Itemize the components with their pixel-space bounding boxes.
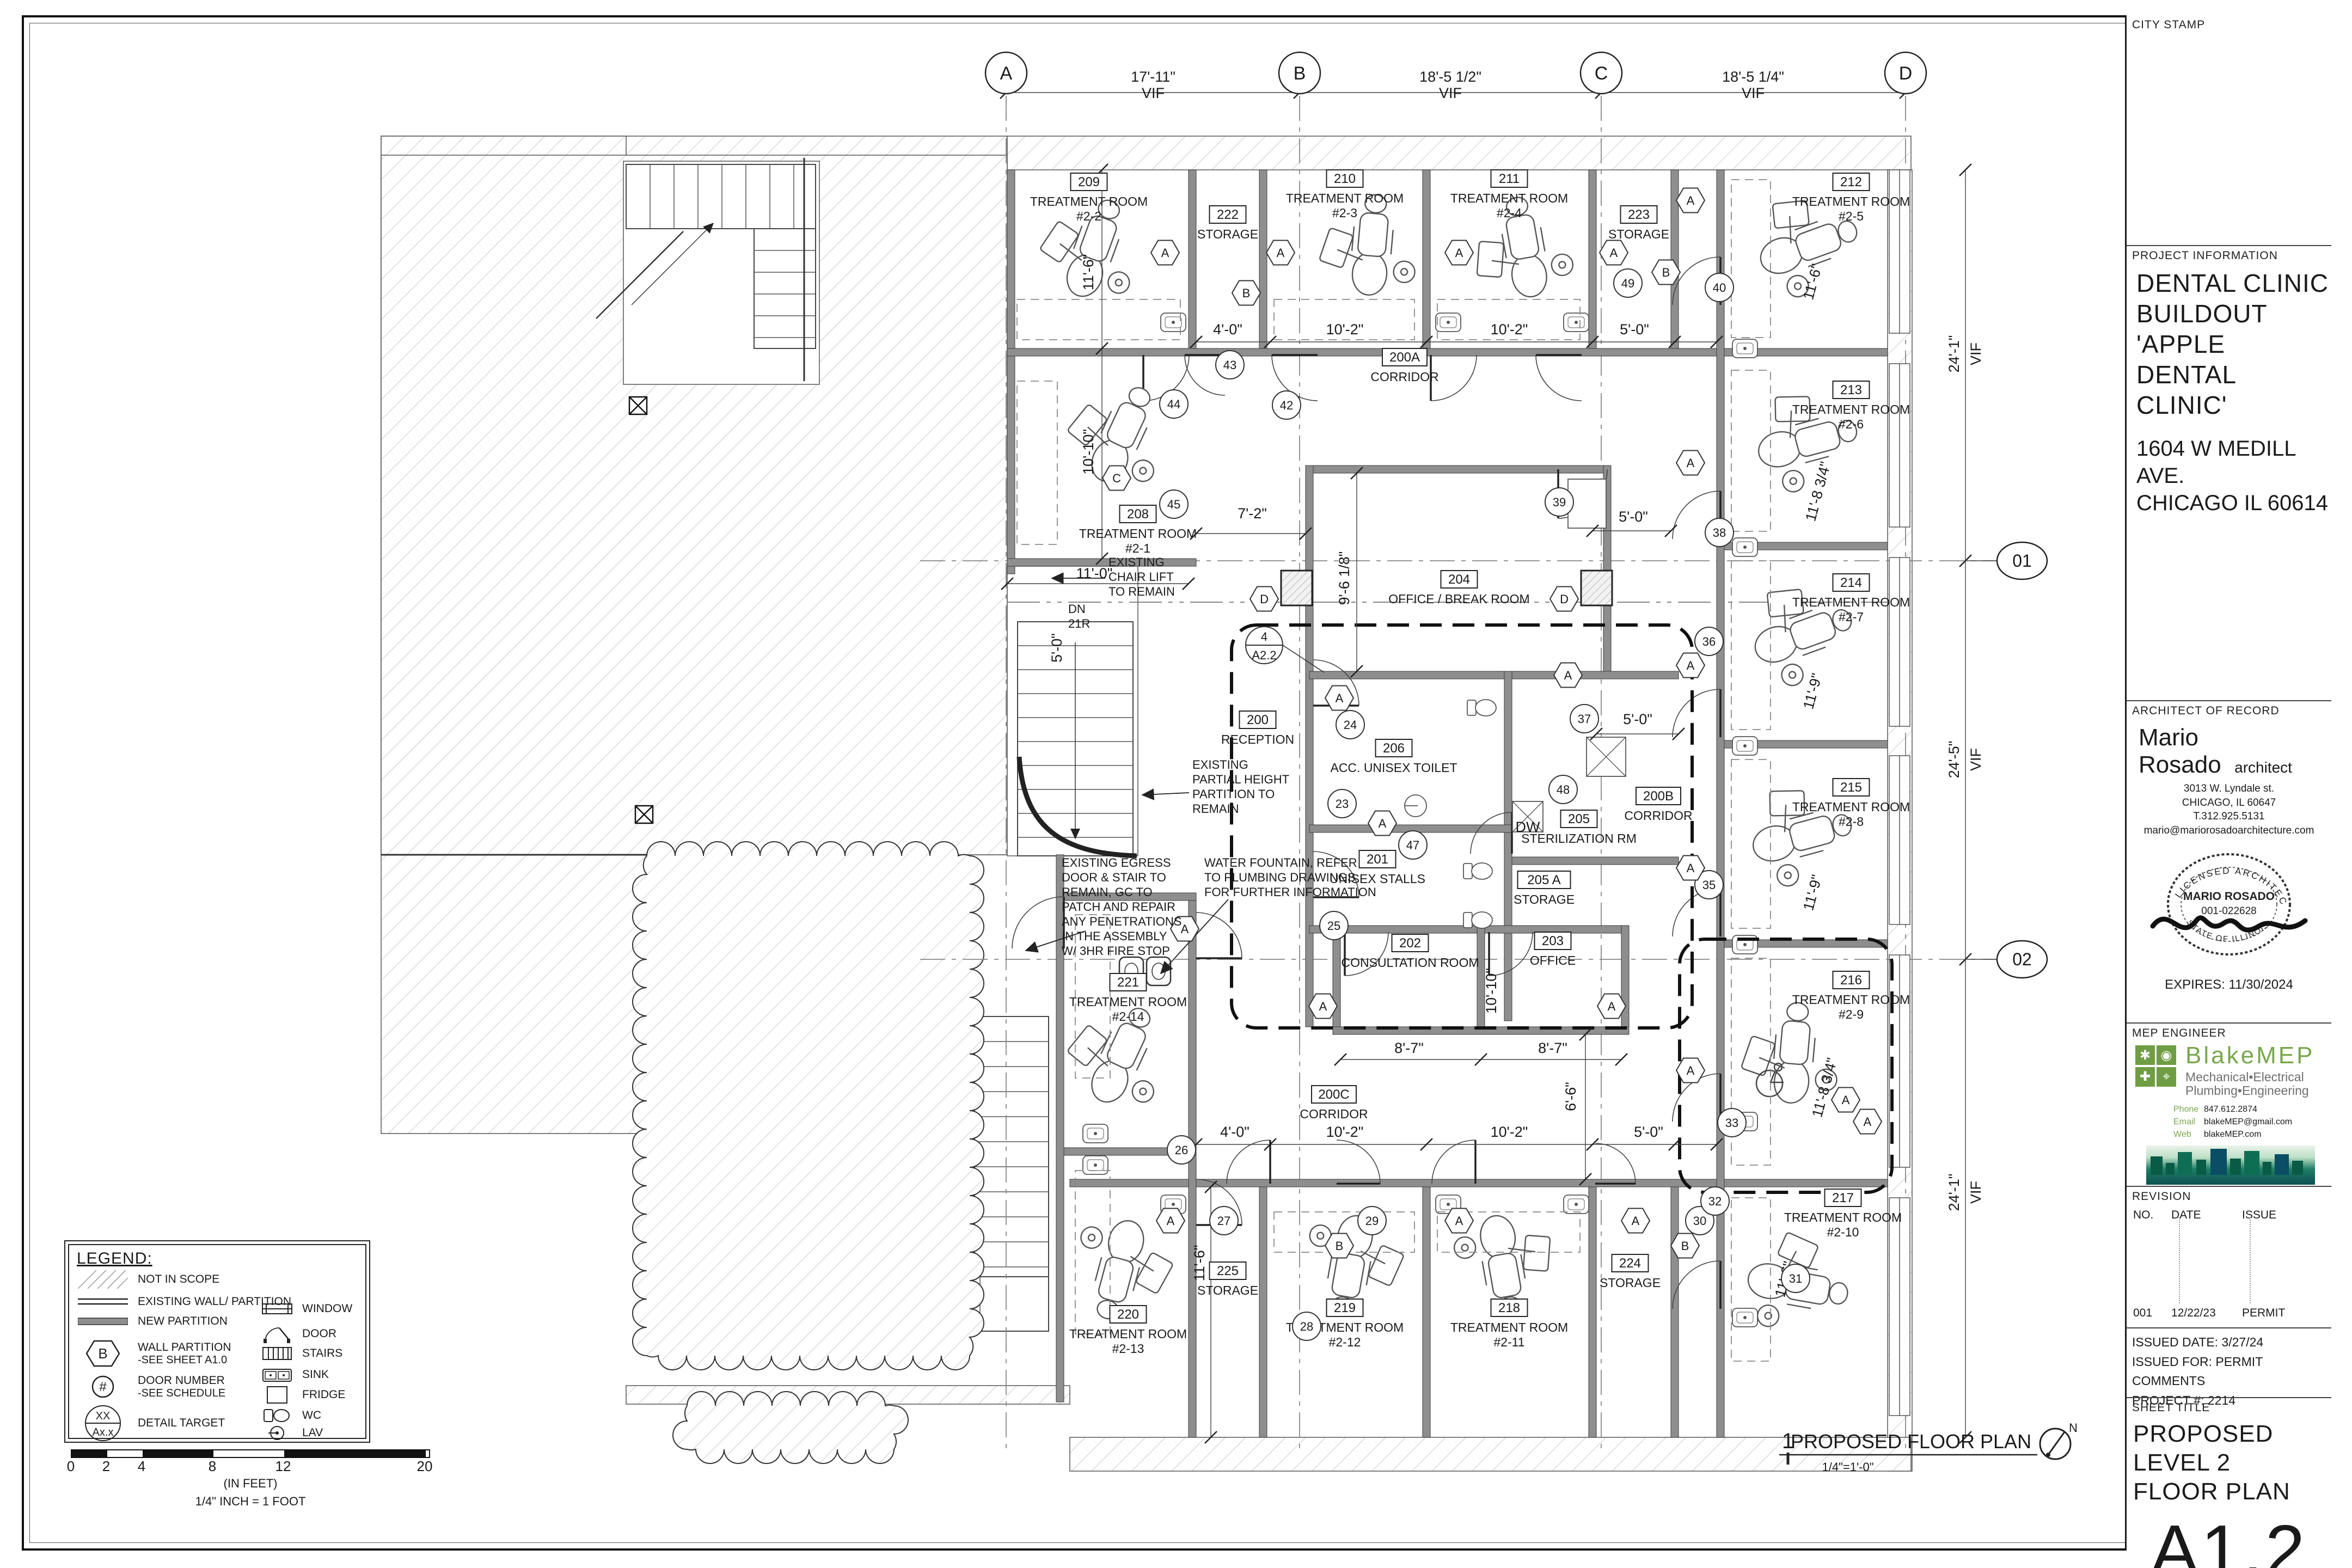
svg-text:37: 37 [1578,712,1591,726]
mep-section: MEP ENGINEER ✱ ◉ ✚ ⌖ BlakeMEP Mechanical… [2127,1022,2331,1186]
mep-services: Mechanical•Electrical Plumbing•Engineeri… [2185,1070,2309,1098]
svg-text:29: 29 [1365,1214,1379,1228]
door-swing [1432,1140,1475,1184]
door-number-tag: 24 [1336,710,1364,739]
svg-text:A: A [1455,246,1463,260]
svg-text:11'-6": 11'-6" [1191,1245,1208,1282]
svg-text:A: A [1687,1064,1695,1077]
svg-text:A: A [1277,246,1285,260]
scale-bar [71,1449,430,1458]
svg-text:REMAIN: REMAIN [1192,802,1239,816]
stair [975,1016,1049,1277]
svg-text:VIF: VIF [1142,85,1165,101]
north-arrow: N [2040,1421,2078,1459]
svg-text:02: 02 [2012,950,2032,969]
license-expires: EXPIRES: 11/30/2024 [2127,975,2331,993]
existing-window-box [1581,571,1612,605]
room-label-218: 218TREATMENT ROOM#2-11 [1450,1299,1568,1349]
new-partition-wall [1621,926,1629,1034]
new-partition-wall [1007,348,1725,356]
project-name: DENTAL CLINIC BUILDOUT 'APPLE DENTAL CLI… [2127,262,2331,421]
svg-text:MARIO ROSADO: MARIO ROSADO [2183,890,2275,903]
svg-text:TREATMENT ROOM: TREATMENT ROOM [1792,993,1910,1007]
wall-type-tag: A [1266,240,1295,265]
svg-text:4: 4 [1261,630,1267,644]
wall-type-tag: A [1853,1109,1882,1134]
door-number-tag: 31 [1781,1264,1810,1293]
window-icon [261,1302,293,1316]
wall-type-tag: A [1554,663,1582,687]
svg-text:VIF: VIF [1968,1181,1984,1204]
svg-text:ANY PENETRATIONS: ANY PENETRATIONS [1062,915,1181,928]
svg-text:217: 217 [1832,1191,1854,1205]
door-swing [1673,689,1720,737]
svg-text:Ax.x: Ax.x [93,1426,114,1438]
grid-bubble-col: C [1581,52,1622,94]
svg-text:D: D [1560,592,1569,606]
new-partition-wall [1724,1179,1888,1187]
door-number-tag: 48 [1549,775,1577,804]
wall-end-marker [629,397,647,414]
lav [1405,795,1426,817]
svg-text:21R: 21R [1068,617,1090,630]
door-number-tag: 26 [1167,1136,1196,1164]
door-number-tag: 36 [1695,627,1723,656]
svg-text:8'-7": 8'-7" [1394,1040,1424,1056]
svg-text:32: 32 [1708,1195,1722,1208]
grid-bubble-col: D [1885,52,1926,94]
svg-text:TREATMENT ROOM: TREATMENT ROOM [1069,995,1187,1009]
svg-text:A: A [1181,922,1189,936]
svg-text:TREATMENT ROOM: TREATMENT ROOM [1792,595,1910,609]
sink [1732,339,1757,358]
window [1889,558,1910,726]
svg-text:STORAGE: STORAGE [1197,1283,1258,1297]
wall-type-tag: A [1151,240,1179,265]
new-partition-wall [1512,857,1679,865]
bulb-icon: ◉ [2157,1045,2176,1065]
new-partition-wall [1306,465,1313,1027]
architect-label: ARCHITECT OF RECORD [2127,701,2331,718]
sheet-number: A1.2 [2127,1509,2331,1568]
plan-note: WATER FOUNTAIN, REFERTO PLUMBING DRAWING… [1204,856,1376,899]
issued-date: ISSUED DATE: 3/27/24 [2132,1333,2331,1352]
legend-box: LEGEND: NOT IN SCOPE EXISTING WALL/ PART… [64,1240,370,1443]
legend-wall-partition: B WALL PARTITION-SEE SHEET A1.0 [77,1337,231,1370]
svg-text:219: 219 [1334,1301,1356,1315]
door-number-tag: 28 [1293,1312,1321,1340]
svg-text:A: A [1687,194,1695,207]
svg-text:11'-8 3/4": 11'-8 3/4" [1802,460,1834,523]
svg-text:TREATMENT ROOM: TREATMENT ROOM [1450,191,1568,205]
dimension-line [1190,336,1723,348]
room-label-204: 204OFFICE / BREAK ROOM [1388,571,1529,606]
leader-arrow [1142,793,1189,795]
svg-text:STORAGE: STORAGE [1197,227,1258,241]
svg-text:OFFICE / BREAK ROOM: OFFICE / BREAK ROOM [1388,592,1529,606]
svg-text:TREATMENT ROOM: TREATMENT ROOM [1286,191,1404,205]
svg-text:30: 30 [1693,1214,1706,1228]
svg-text:ACC. UNISEX TOILET: ACC. UNISEX TOILET [1330,761,1457,775]
svg-text:25: 25 [1327,919,1340,933]
svg-text:200A: 200A [1389,350,1420,365]
door-number-tag: 47 [1399,831,1427,859]
svg-text:REMAIN, GC TO: REMAIN, GC TO [1062,885,1153,899]
project-address: 1604 W MEDILL AVE. CHICAGO IL 60614 [2127,421,2331,517]
city-stamp-section: CITY STAMP [2127,15,2331,245]
wall-type-tag: A [1600,240,1628,265]
svg-text:C: C [1595,63,1608,84]
svg-text:A: A [1842,1093,1850,1107]
new-partition-swatch-icon [77,1316,129,1326]
project-info-label: PROJECT INFORMATION [2127,246,2331,262]
svg-text:A: A [1632,1214,1640,1228]
legend-not-in-scope: NOT IN SCOPE [77,1270,219,1289]
svg-text:#2-8: #2-8 [1839,814,1864,829]
svg-text:A: A [1864,1115,1872,1129]
svg-text:24'-1": 24'-1" [1946,1174,1962,1211]
grid-bubble-col: B [1279,52,1320,94]
svg-text:10'-10": 10'-10" [1080,429,1097,475]
svg-text:DOOR & STAIR TO: DOOR & STAIR TO [1062,871,1166,884]
issued-section: ISSUED DATE: 3/27/24 ISSUED FOR: PERMIT … [2127,1327,2331,1397]
svg-text:IN THE ASSEMBLY: IN THE ASSEMBLY [1062,929,1167,943]
new-partition-wall [1189,170,1196,348]
svg-text:203: 203 [1542,934,1564,948]
door-number-tag: 42 [1272,391,1301,419]
svg-text:W/ 3HR FIRE STOP: W/ 3HR FIRE STOP [1062,944,1170,958]
svg-text:35: 35 [1702,878,1716,892]
door-number-tag: 39 [1545,488,1573,516]
room-label-224: 224STORAGE [1600,1254,1661,1290]
svg-text:27: 27 [1217,1214,1230,1228]
grid-bubble-row: 02 [1965,941,2047,978]
new-partition-wall [1007,170,1015,574]
revision-label: REVISION [2127,1187,2331,1203]
svg-text:43: 43 [1223,358,1236,372]
door-number-tag: 49 [1614,269,1642,297]
svg-text:42: 42 [1280,399,1293,412]
svg-text:CHAIR LIFT: CHAIR LIFT [1108,570,1174,584]
new-partition-wall [1671,170,1679,348]
svg-text:RECEPTION: RECEPTION [1221,732,1294,746]
svg-text:XX: XX [96,1410,111,1422]
svg-text:TREATMENT ROOM: TREATMENT ROOM [1079,526,1197,541]
revision-headers: NO.DATEISSUE [2127,1203,2331,1222]
existing-wall-swatch-icon [77,1297,129,1307]
svg-text:205 A: 205 A [1527,873,1560,887]
door-number-tag: 23 [1328,789,1356,818]
wc-icon [261,1407,293,1424]
svg-text:211: 211 [1499,171,1520,186]
plan-note: EXISTINGPARTIAL HEIGHTPARTITION TOREMAIN [1192,758,1289,816]
svg-text:4'-0": 4'-0" [1213,321,1242,338]
svg-text:A: A [1687,659,1695,672]
sink-icon [261,1366,293,1383]
stair [754,229,816,348]
svg-text:PROPOSED FLOOR PLAN: PROPOSED FLOOR PLAN [1791,1430,2031,1453]
svg-text:A: A [1000,63,1013,84]
svg-text:#2-3: #2-3 [1332,206,1357,220]
door-number-tag: 37 [1570,705,1598,733]
sink [1732,538,1757,556]
svg-text:224: 224 [1619,1256,1641,1271]
wc [1463,863,1492,879]
sink [1564,313,1589,332]
casework-dashed [1017,381,1057,544]
architect-stamp: LICENSED ARCHITECT STATE OF ILLINOIS MAR… [2136,839,2322,975]
room-label-206: 206ACC. UNISEX TOILET [1330,739,1457,775]
svg-text:CORRIDOR: CORRIDOR [1300,1107,1368,1121]
svg-text:11'-0": 11'-0" [1076,565,1113,581]
svg-text:11'-6": 11'-6" [1080,254,1097,291]
svg-text:9'-6 1/8": 9'-6 1/8" [1336,552,1352,605]
door-number-tag: 45 [1160,490,1188,518]
dimension-line [1190,528,1312,540]
revision-cloud [673,1392,908,1463]
svg-text:A2.2: A2.2 [1252,648,1276,662]
svg-text:24'-1": 24'-1" [1946,335,1962,373]
sink [1083,1124,1108,1143]
fixtures-layer [1000,87,1971,1443]
wall-end-marker [635,806,653,823]
legend-stairs: STAIRS [261,1345,342,1362]
sheet-title: PROPOSED LEVEL 2 FLOOR PLAN [2127,1414,2331,1506]
svg-text:10'-2": 10'-2" [1326,1124,1364,1140]
door-number-tag: 32 [1701,1187,1729,1215]
svg-text:#2-9: #2-9 [1839,1007,1864,1021]
new-partition-wall [1259,1187,1267,1437]
door-number-tag: 29 [1358,1206,1386,1235]
revision-divider [2179,1217,2180,1303]
svg-text:202: 202 [1399,936,1421,951]
counter-sink [1587,737,1626,776]
svg-text:VIF: VIF [1439,85,1462,101]
new-partition-wall [1671,1187,1679,1437]
wall-type-tag: D [1550,586,1578,611]
new-partition-wall [1259,170,1267,348]
new-partition-wall [1717,170,1724,1437]
not-in-scope-hatch [1007,136,1911,170]
project-info-section: PROJECT INFORMATION DENTAL CLINIC BUILDO… [2127,245,2331,471]
svg-text:40: 40 [1713,281,1726,295]
svg-text:201: 201 [1367,852,1388,867]
legend-detail-target: XXAx.x DETAIL TARGET [77,1404,225,1442]
svg-text:5'-0": 5'-0" [1634,1124,1663,1140]
architect-section: ARCHITECT OF RECORD Mario Rosado archite… [2127,700,2331,1022]
mep-skyline-image [2146,1146,2315,1185]
legend-title: LEGEND: [77,1249,152,1268]
svg-text:WATER FOUNTAIN, REFER: WATER FOUNTAIN, REFER [1204,856,1357,869]
svg-text:TREATMENT ROOM: TREATMENT ROOM [1792,194,1910,209]
svg-text:OFFICE: OFFICE [1530,953,1576,967]
svg-text:18'-5 1/4": 18'-5 1/4" [1722,69,1784,85]
graphic-scale-bar: 0 2 4 8 12 20 (IN FEET) 1/4" INCH = 1 FO… [71,1449,430,1510]
new-partition-wall [1309,671,1679,679]
svg-text:#2-10: #2-10 [1827,1225,1859,1239]
svg-text:A: A [1608,1000,1616,1013]
svg-text:TREATMENT ROOM: TREATMENT ROOM [1030,194,1148,209]
room-label-223: 223STORAGE [1608,206,1669,241]
new-partition-wall [1504,671,1512,1021]
grid-bubble-col: A [985,52,1027,94]
sink [1732,737,1757,755]
room-label-222: 222STORAGE [1197,206,1258,241]
wc [1467,700,1496,716]
svg-text:200C: 200C [1318,1087,1349,1102]
svg-text:TREATMENT ROOM: TREATMENT ROOM [1069,1327,1187,1341]
door-swing [1536,355,1582,401]
new-partition-wall [1189,901,1196,1437]
svg-text:A: A [1687,456,1695,470]
revision-divider [2250,1217,2251,1303]
svg-text:6'-6": 6'-6" [1563,1082,1579,1111]
wall-type-tag: D [1250,586,1278,611]
svg-text:24'-5": 24'-5" [1946,741,1962,779]
svg-text:#2-5: #2-5 [1839,209,1864,223]
svg-text:5'-0": 5'-0" [1623,711,1652,727]
door-swing [1227,1140,1270,1184]
svg-text:B: B [1681,1239,1689,1253]
svg-text:B: B [1294,63,1306,84]
svg-text:10'-10": 10'-10" [1483,968,1499,1014]
wall-type-tag: A [1832,1087,1860,1112]
door-number-circle-icon: # [77,1374,129,1400]
room-label-209: 209TREATMENT ROOM#2-2 [1030,173,1148,223]
svg-text:208: 208 [1127,507,1149,522]
svg-text:PARTITION TO: PARTITION TO [1192,787,1275,801]
svg-text:222: 222 [1217,207,1239,222]
door-number-tag: 40 [1705,273,1734,302]
svg-text:STORAGE: STORAGE [1608,227,1669,241]
door-number-tag: 27 [1210,1206,1238,1235]
svg-text:TREATMENT ROOM: TREATMENT ROOM [1784,1210,1902,1224]
svg-text:N: N [2069,1421,2078,1435]
new-partition-wall [1589,170,1596,348]
sink [1161,313,1186,332]
issued-for: ISSUED FOR: PERMIT COMMENTS [2132,1352,2331,1391]
legend-wc: WC [261,1407,321,1424]
architect-title: architect [2234,759,2292,776]
door-number-tag: 25 [1320,911,1348,940]
sheet-title-section: SHEET TITLE PROPOSED LEVEL 2 FLOOR PLAN … [2127,1397,2331,1551]
svg-text:B: B [1336,1239,1344,1253]
svg-text:218: 218 [1498,1301,1520,1315]
wall-tag-hexagon-icon: B [77,1337,129,1370]
svg-text:39: 39 [1553,495,1566,509]
title-block: CITY STAMP PROJECT INFORMATION DENTAL CL… [2125,15,2331,1551]
svg-text:23: 23 [1336,797,1349,811]
svg-text:EXISTING: EXISTING [1192,758,1248,771]
svg-text:C: C [1112,471,1121,485]
new-partition-wall [1309,465,1611,473]
new-partition-wall [1589,1187,1596,1437]
svg-text:DW: DW [1516,819,1540,835]
svg-text:A: A [1167,1214,1175,1228]
dimension-line [1579,1028,1591,1185]
svg-text:36: 36 [1702,635,1716,648]
svg-text:A: A [1336,691,1344,705]
new-partition-wall [1423,1187,1430,1437]
svg-text:B: B [1242,286,1251,300]
svg-text:216: 216 [1840,973,1862,988]
svg-text:11'-9": 11'-9" [1800,873,1825,912]
svg-text:221: 221 [1117,975,1139,990]
svg-text:CORRIDOR: CORRIDOR [1370,370,1438,384]
legend-new-partition: NEW PARTITION [77,1315,228,1328]
svg-text:B: B [1662,266,1670,279]
svg-text:B: B [98,1345,107,1362]
wall-type-tag: A [1445,240,1473,265]
architect-contact: 3013 W. Lyndale st. CHICAGO, IL 60647 T.… [2127,779,2331,838]
svg-text:10'-2": 10'-2" [1491,1124,1528,1140]
svg-text:213: 213 [1840,383,1862,397]
room-label-210: 210TREATMENT ROOM#2-3 [1286,170,1404,220]
mep-name: BlakeMEP [2185,1042,2314,1069]
legend-window: WINDOW [261,1302,352,1316]
svg-text:220: 220 [1117,1307,1139,1322]
svg-text:A: A [1379,817,1387,830]
svg-text:#2-1: #2-1 [1125,541,1150,555]
svg-text:204: 204 [1448,572,1470,587]
wall-type-tag: A [1621,1208,1650,1233]
window [1889,1198,1910,1416]
legend-sink: SINK [261,1366,329,1383]
svg-text:TREATMENT ROOM: TREATMENT ROOM [1792,800,1910,814]
svg-text:TREATMENT ROOM: TREATMENT ROOM [1450,1320,1568,1334]
svg-text:PARTIAL HEIGHT: PARTIAL HEIGHT [1192,773,1289,786]
sink [1564,1195,1589,1214]
mep-logo-tiles: ✱ ◉ ✚ ⌖ [2135,1045,2177,1087]
svg-text:STORAGE: STORAGE [1514,892,1575,906]
svg-text:28: 28 [1300,1320,1313,1333]
svg-text:TO PLUMBING DRAWINGS: TO PLUMBING DRAWINGS [1204,871,1355,884]
casework-dashed [1017,299,1180,340]
window [1889,756,1910,924]
svg-text:8'-7": 8'-7" [1538,1040,1567,1056]
wall-type-tag: B [1232,280,1260,305]
svg-text:#2-7: #2-7 [1839,610,1864,624]
svg-text:VIF: VIF [1742,85,1765,101]
room-label-220: 220TREATMENT ROOM#2-13 [1069,1306,1187,1356]
svg-text:VIF: VIF [1968,748,1984,771]
svg-text:24: 24 [1344,718,1357,732]
lav-icon [261,1425,293,1441]
stairs-icon [261,1345,293,1362]
room-label-211: 211TREATMENT ROOM#2-4 [1450,170,1568,220]
svg-text:VIF: VIF [1968,342,1984,365]
water-fountain [1147,957,1171,985]
wc [1463,912,1492,928]
room-label-200C: 200CCORRIDOR [1300,1086,1368,1121]
existing-window-box [1281,571,1312,605]
svg-text:11'-9": 11'-9" [1800,672,1825,711]
not-in-scope-hatch [381,855,647,1134]
revision-row: 00112/22/23PERMIT [2127,1307,2331,1320]
legend-door: DOOR [261,1325,336,1343]
svg-text:49: 49 [1621,277,1634,290]
svg-text:11'-8 3/4": 11'-8 3/4" [1809,1056,1840,1119]
sink [1436,313,1461,332]
drawing-sheet: { "sheet": { "city_stamp": "CITY STAMP",… [0,0,2352,1568]
legend-existing-wall: EXISTING WALL/ PARTITION [77,1295,291,1308]
door-number-tag: 43 [1216,351,1244,379]
wall-type-tag: A [1325,685,1353,710]
svg-text:01: 01 [2012,551,2032,571]
svg-text:A: A [1161,246,1169,260]
legend-fridge: FRIDGE [261,1386,345,1404]
scale-bar-numbers: 0 2 4 8 12 20 [71,1458,430,1474]
